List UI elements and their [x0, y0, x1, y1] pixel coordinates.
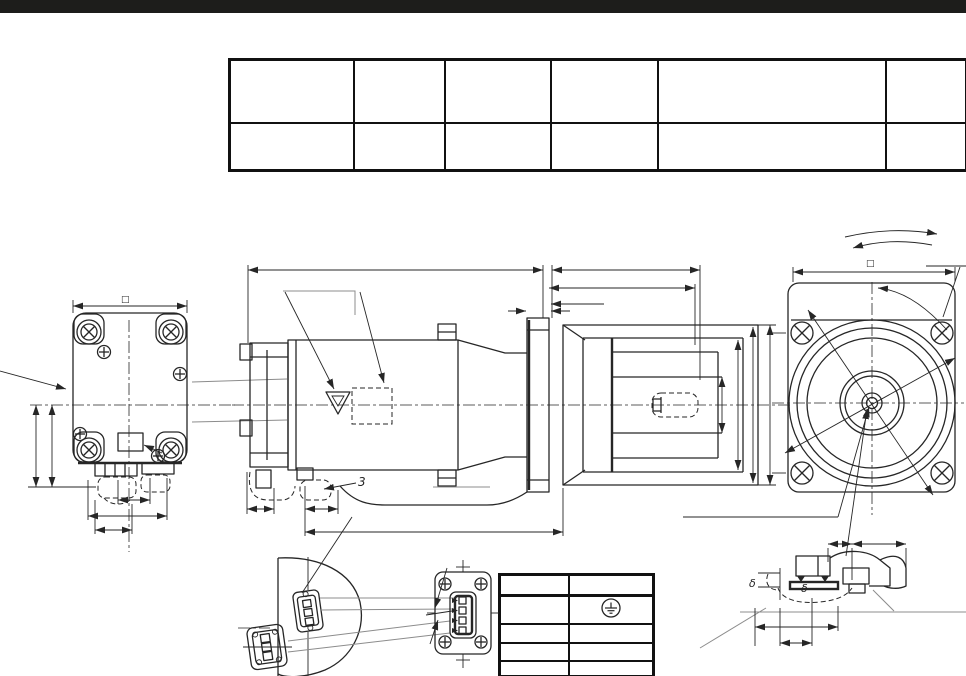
motor-side-view: 3: [232, 265, 790, 593]
detail-delta-label-2: δ: [801, 582, 808, 595]
connector-face-view: [427, 560, 499, 668]
shaft-connector-detail: δ δ: [700, 544, 966, 648]
motor-front-view: □: [683, 231, 966, 556]
side-leader-label: 3: [358, 475, 366, 489]
rotation-arrow-cw: [845, 231, 937, 237]
drawing-page: □: [0, 0, 966, 676]
front-square-mark: □: [866, 259, 875, 269]
connector-angle-detail: [238, 557, 455, 676]
rotation-arrow-ccw: [853, 242, 932, 248]
rear-square-mark: □: [121, 295, 130, 305]
surface-finish-mark: [326, 392, 350, 414]
dimension-drawing: □: [0, 0, 966, 676]
detail-delta-label-1: δ: [749, 577, 756, 590]
motor-rear-view: □: [0, 295, 287, 552]
